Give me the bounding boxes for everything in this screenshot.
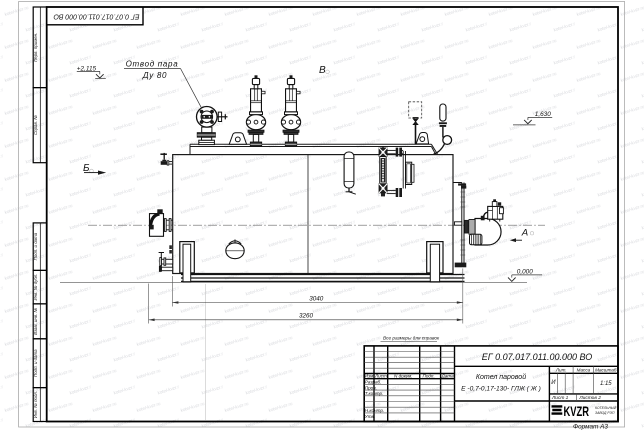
svg-text:N докум.: N докум. xyxy=(394,374,413,379)
svg-text:Разраб.: Разраб. xyxy=(365,380,382,385)
svg-text:Т.контр.: Т.контр. xyxy=(365,391,384,396)
svg-text:Лист: Лист xyxy=(374,374,387,379)
svg-text:1,630: 1,630 xyxy=(535,111,551,118)
svg-text:KVZR: KVZR xyxy=(564,404,590,419)
svg-text:Все размеры для справок: Все размеры для справок xyxy=(383,335,440,340)
svg-text:3040: 3040 xyxy=(309,295,324,302)
svg-text:И: И xyxy=(551,380,556,386)
svg-text:Утв.: Утв. xyxy=(365,414,375,419)
svg-text:Листов 2: Листов 2 xyxy=(578,395,601,401)
svg-text:Формат А3: Формат А3 xyxy=(573,424,608,430)
svg-text:КОТЕЛЬНЫЙ: КОТЕЛЬНЫЙ xyxy=(595,406,617,410)
svg-text:Инв. № подл.: Инв. № подл. xyxy=(33,391,38,418)
svg-text:Ду 80: Ду 80 xyxy=(142,71,167,80)
svg-text:Масштаб: Масштаб xyxy=(595,368,617,373)
svg-text:Инв. № дубл.: Инв. № дубл. xyxy=(33,273,38,300)
svg-text:Справ. №: Справ. № xyxy=(33,115,38,135)
svg-text:1:15: 1:15 xyxy=(600,381,612,387)
svg-text:ЕГ 0.07.017.011.00.000 ВО: ЕГ 0.07.017.011.00.000 ВО xyxy=(53,12,140,19)
svg-text:Подп. и дата: Подп. и дата xyxy=(33,349,38,377)
svg-text:Подп. и дата: Подп. и дата xyxy=(33,232,38,260)
svg-text:Изм.: Изм. xyxy=(365,374,375,379)
svg-text:Пров.: Пров. xyxy=(365,385,377,390)
svg-text:Взам. инв. №: Взам. инв. № xyxy=(33,307,38,334)
svg-text:А: А xyxy=(521,227,528,238)
svg-text:В: В xyxy=(319,65,326,76)
svg-text:ЗАВОД РЭП: ЗАВОД РЭП xyxy=(595,411,615,415)
svg-text:3260: 3260 xyxy=(299,313,314,320)
svg-text:Подп.: Подп. xyxy=(423,374,435,379)
svg-text:Е -0,7-0,17-130- ГЛЖ ( Ж ): Е -0,7-0,17-130- ГЛЖ ( Ж ) xyxy=(461,386,541,393)
svg-text:Лит.: Лит. xyxy=(555,368,567,373)
svg-text:Масса: Масса xyxy=(577,368,591,373)
svg-text:Лист 1: Лист 1 xyxy=(551,395,569,401)
svg-text:Котел паровой: Котел паровой xyxy=(476,373,526,381)
svg-text:Дата: Дата xyxy=(441,374,455,379)
svg-text:Отвод пара: Отвод пара xyxy=(126,60,179,69)
svg-text:Н.контр.: Н.контр. xyxy=(365,408,384,413)
svg-text:Перв. примен.: Перв. примен. xyxy=(33,33,38,62)
svg-text:ЕГ 0.07.017.011.00.000 ВО: ЕГ 0.07.017.011.00.000 ВО xyxy=(482,352,593,362)
